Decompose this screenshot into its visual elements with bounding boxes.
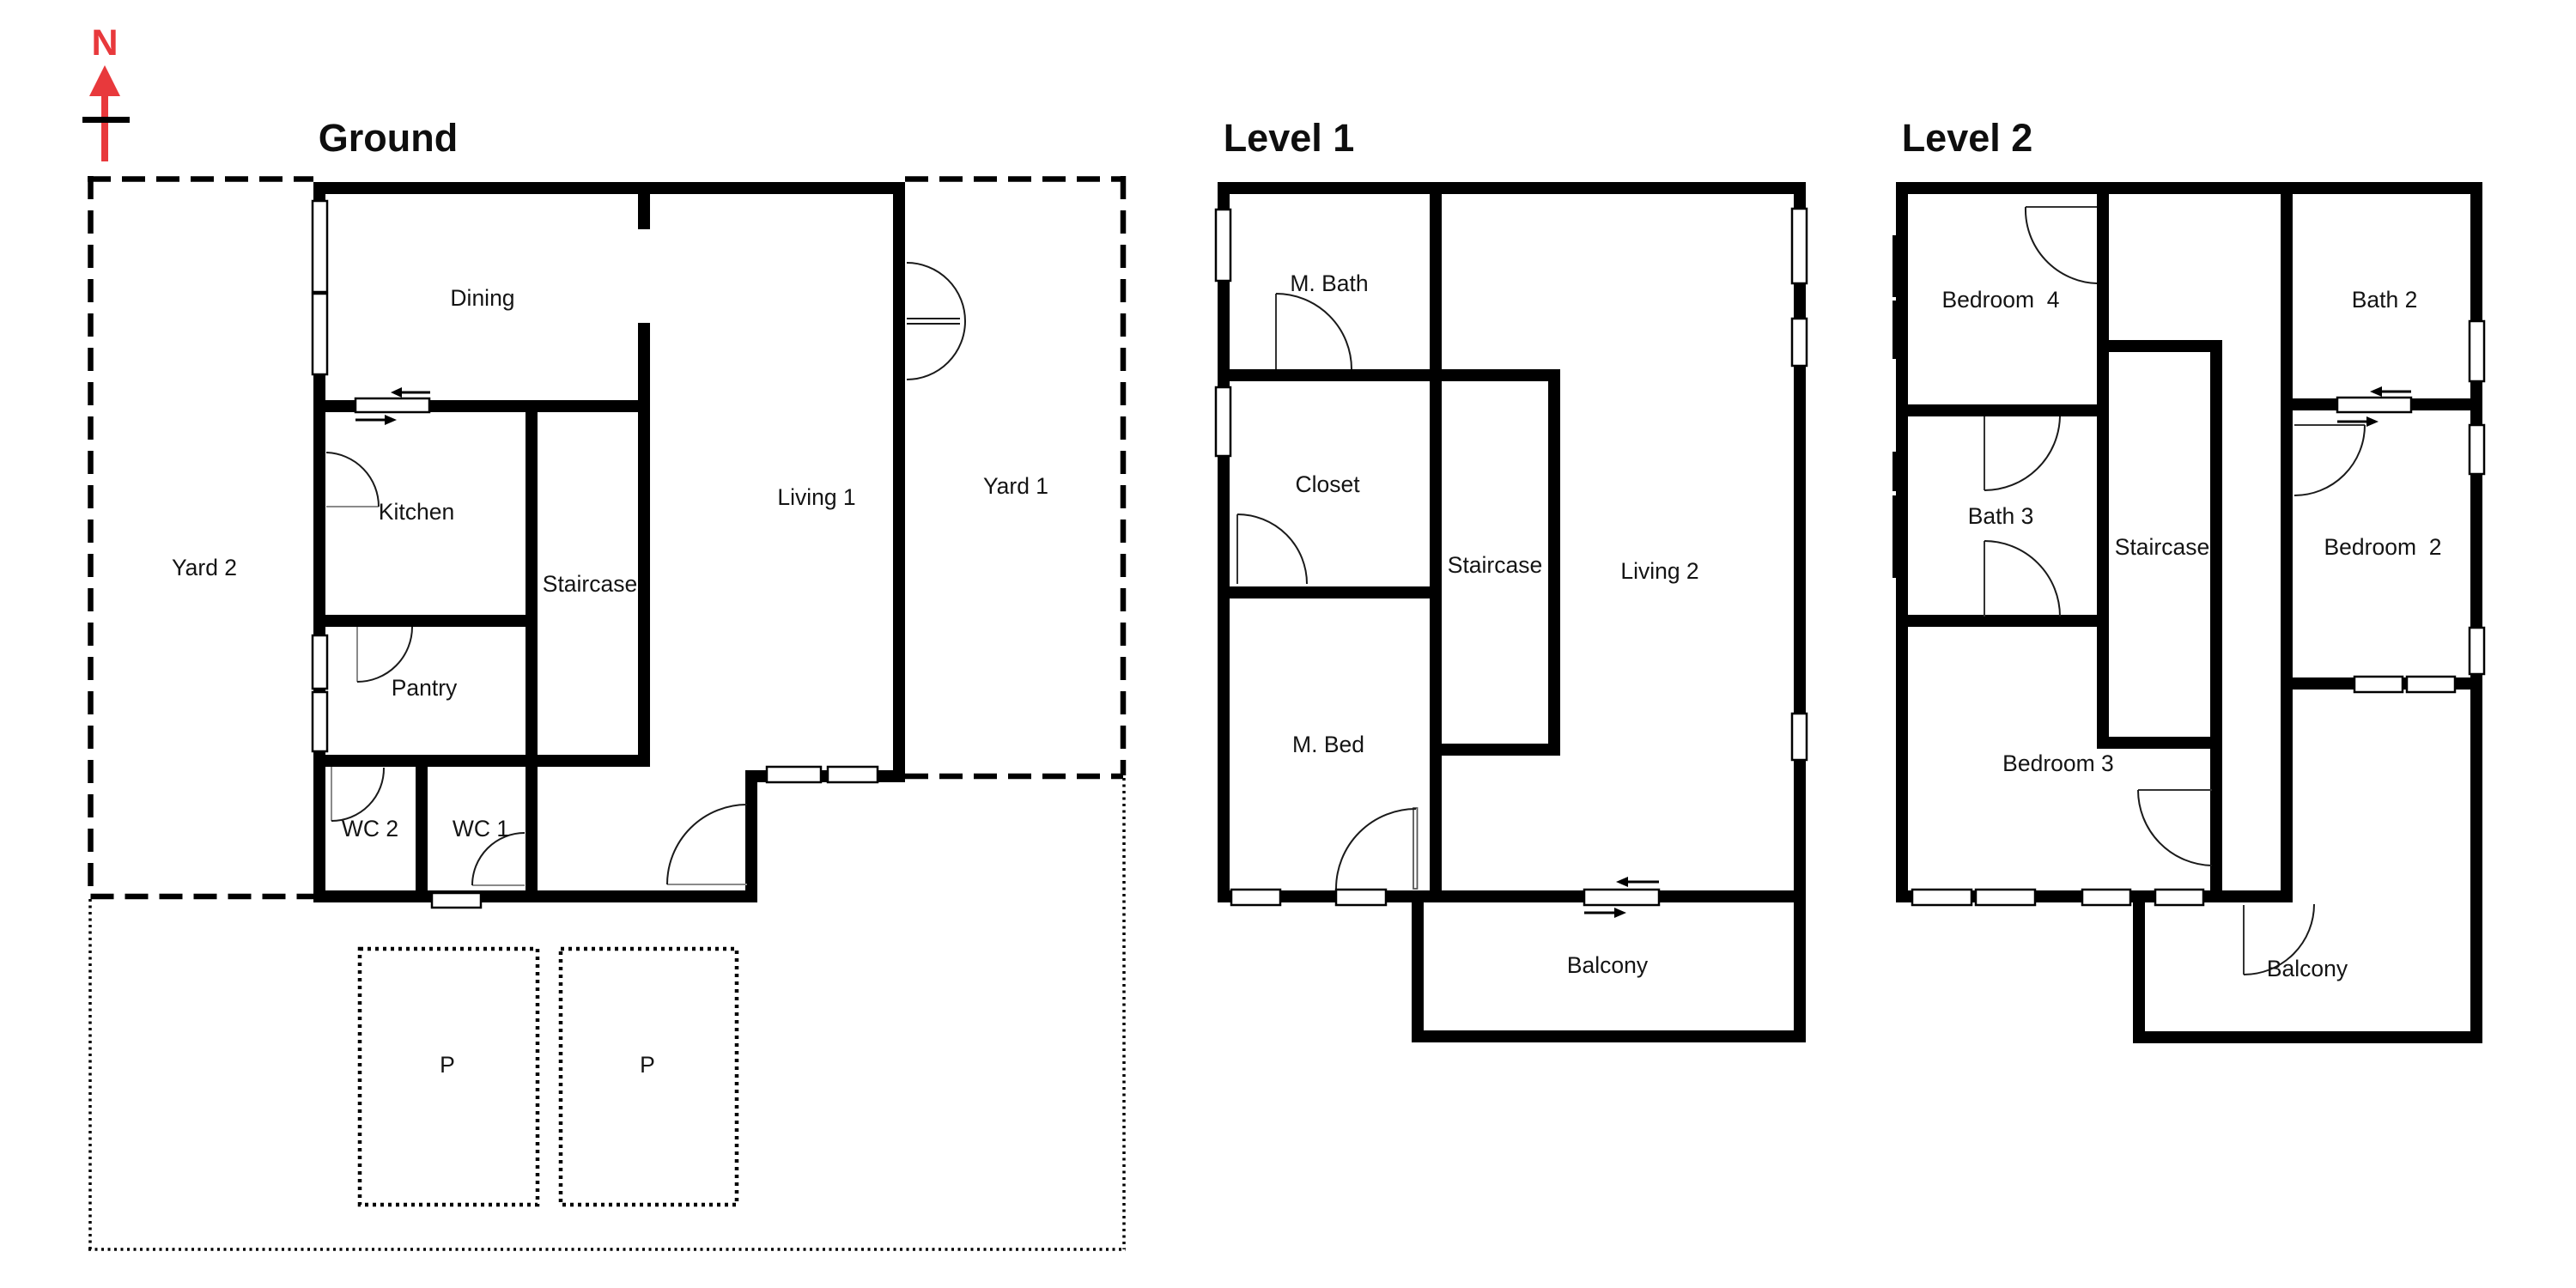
svg-text:Balcony: Balcony xyxy=(1567,952,1649,978)
svg-text:Yard 2: Yard 2 xyxy=(172,555,237,580)
svg-text:Level 2: Level 2 xyxy=(1902,116,2033,160)
svg-text:Bath 2: Bath 2 xyxy=(2352,287,2418,313)
svg-text:Ground: Ground xyxy=(319,116,458,160)
svg-text:Bedroom 2: Bedroom 2 xyxy=(2324,534,2442,560)
svg-text:Yard 1: Yard 1 xyxy=(983,473,1048,499)
svg-text:N: N xyxy=(91,22,118,64)
svg-text:Kitchen: Kitchen xyxy=(379,499,454,525)
svg-text:Balcony: Balcony xyxy=(2267,956,2348,981)
svg-text:Staircase: Staircase xyxy=(2115,534,2209,560)
svg-text:Staircase: Staircase xyxy=(1448,552,1542,578)
svg-text:Level 1: Level 1 xyxy=(1224,116,1355,160)
svg-text:WC 2: WC 2 xyxy=(342,816,398,841)
svg-text:Bath 3: Bath 3 xyxy=(1968,503,2034,529)
svg-text:Bedroom 3: Bedroom 3 xyxy=(2002,750,2114,776)
svg-text:P: P xyxy=(640,1052,655,1078)
svg-text:Closet: Closet xyxy=(1295,471,1360,497)
svg-text:P: P xyxy=(440,1052,455,1078)
svg-text:Living 1: Living 1 xyxy=(777,484,855,510)
svg-text:Dining: Dining xyxy=(450,285,514,311)
svg-text:M. Bath: M. Bath xyxy=(1290,270,1368,296)
svg-text:Living 2: Living 2 xyxy=(1620,558,1698,584)
svg-text:Pantry: Pantry xyxy=(392,675,458,701)
svg-text:WC 1: WC 1 xyxy=(453,816,509,841)
svg-text:M. Bed: M. Bed xyxy=(1292,732,1364,757)
svg-text:Staircase: Staircase xyxy=(543,571,637,597)
svg-text:Bedroom 4: Bedroom 4 xyxy=(1942,287,2060,313)
